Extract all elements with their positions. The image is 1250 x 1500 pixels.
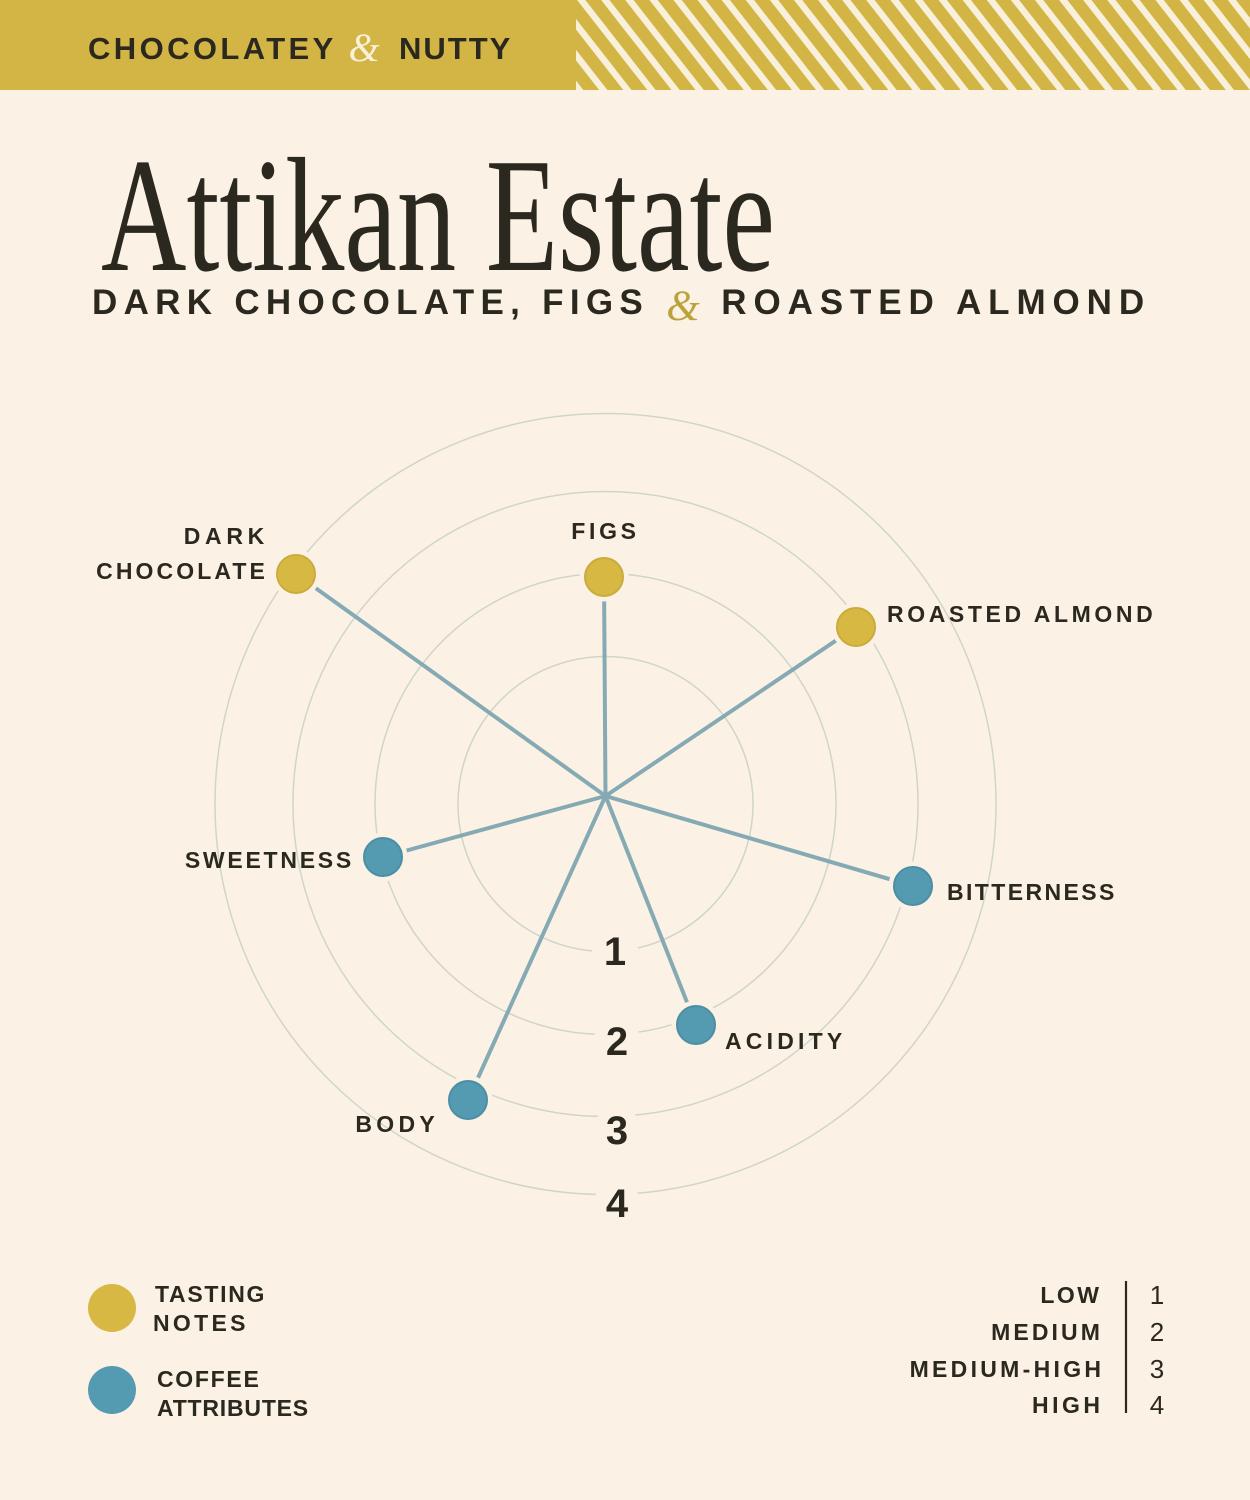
- svg-text:DARK CHOCOLATE, FIGS: DARK CHOCOLATE, FIGS: [92, 283, 649, 322]
- svg-text:COFFEE: COFFEE: [157, 1366, 260, 1392]
- svg-text:NUTTY: NUTTY: [399, 31, 512, 66]
- svg-text:DARK: DARK: [184, 523, 269, 549]
- svg-text:MEDIUM: MEDIUM: [991, 1319, 1103, 1345]
- svg-text:ATTRIBUTES: ATTRIBUTES: [157, 1395, 309, 1421]
- svg-text:3: 3: [1150, 1354, 1164, 1384]
- svg-text:ACIDITY: ACIDITY: [725, 1028, 846, 1054]
- svg-text:3: 3: [606, 1109, 628, 1153]
- svg-text:TASTING: TASTING: [155, 1281, 266, 1307]
- svg-text:NOTES: NOTES: [153, 1310, 249, 1336]
- svg-text:&: &: [348, 25, 379, 70]
- svg-text:2: 2: [1150, 1317, 1164, 1347]
- svg-text:BODY: BODY: [355, 1111, 439, 1137]
- svg-text:CHOCOLATEY: CHOCOLATEY: [88, 31, 337, 66]
- svg-text:MEDIUM-HIGH: MEDIUM-HIGH: [910, 1356, 1105, 1382]
- svg-text:Attikan Estate: Attikan Estate: [101, 126, 775, 306]
- svg-text:4: 4: [1150, 1390, 1164, 1420]
- svg-text:1: 1: [604, 930, 626, 974]
- svg-text:4: 4: [606, 1182, 629, 1226]
- svg-text:LOW: LOW: [1040, 1282, 1101, 1308]
- svg-text:ROASTED ALMOND: ROASTED ALMOND: [721, 283, 1151, 322]
- svg-text:HIGH: HIGH: [1032, 1392, 1104, 1418]
- svg-text:ROASTED ALMOND: ROASTED ALMOND: [887, 601, 1156, 627]
- svg-text:BITTERNESS: BITTERNESS: [947, 879, 1117, 905]
- svg-text:1: 1: [1150, 1280, 1164, 1310]
- svg-text:2: 2: [606, 1020, 628, 1064]
- svg-text:SWEETNESS: SWEETNESS: [185, 847, 354, 873]
- svg-text:CHOCOLATE: CHOCOLATE: [96, 558, 268, 584]
- svg-text:&: &: [666, 283, 700, 330]
- svg-text:FIGS: FIGS: [571, 518, 639, 544]
